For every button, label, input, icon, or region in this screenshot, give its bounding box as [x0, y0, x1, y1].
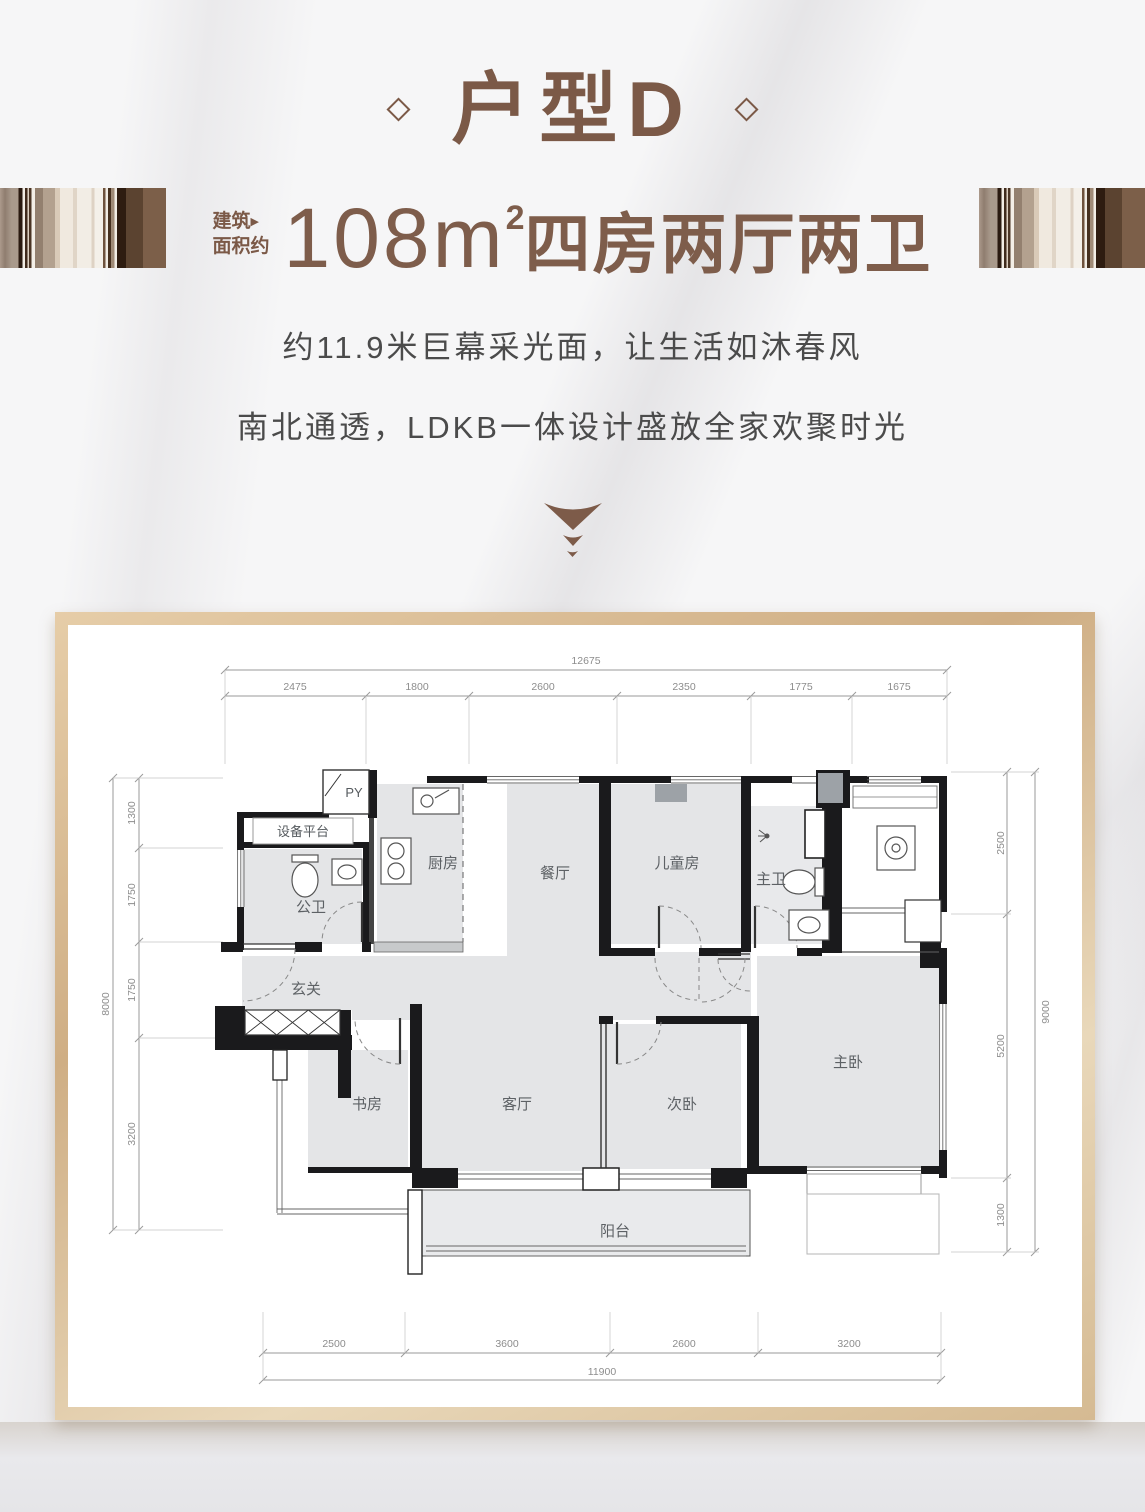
title-row: 户型D: [0, 70, 1145, 148]
kitchen-sink-icon: [413, 788, 459, 814]
area-superscript: 2: [506, 199, 525, 237]
toilet-icon: [292, 863, 318, 897]
dim-left-seg: 3200: [126, 1122, 138, 1146]
toilet-tank: [292, 855, 318, 862]
room-label-master-bath: 主卫: [756, 871, 786, 888]
dim-bottom-seg: 3600: [495, 1338, 519, 1350]
dim-left-total: 8000: [100, 992, 112, 1016]
dim-bottom-seg: 2600: [672, 1338, 696, 1350]
floorplan-canvas: 12675 2475 1800 2600 2350 1775 1675 8000…: [68, 625, 1082, 1407]
area-headline: 建筑▶ 面积约 108m2四房两厅两卫: [0, 193, 1145, 283]
dim-top-seg: 2600: [531, 681, 555, 693]
shower-column: [805, 810, 825, 858]
dim-right-seg: 2500: [995, 831, 1007, 855]
triangle-right-icon: ▶: [250, 216, 258, 228]
dim-top-seg: 2475: [283, 681, 307, 693]
dim-left-seg: 1750: [126, 978, 138, 1002]
room-label-master-bed: 主卧: [833, 1054, 863, 1071]
area-value: 108m2四房两厅两卫: [283, 196, 932, 280]
room-label-equipment: 设备平台: [277, 824, 329, 839]
dim-top-seg: 1800: [405, 681, 429, 693]
dimension-left: [109, 774, 223, 1234]
room-label-guest-bath: 公卫: [296, 899, 326, 916]
room-label-py: PY: [345, 785, 363, 800]
dimension-top: [221, 666, 951, 764]
floorplan-svg: 12675 2475 1800 2600 2350 1775 1675 8000…: [68, 625, 1082, 1407]
dim-right-seg: 1300: [995, 1203, 1007, 1227]
dimension-left-labels: 8000 1300 1750 1750 3200: [100, 801, 138, 1146]
dim-top-seg: 1675: [887, 681, 911, 693]
dim-top-seg: 1775: [789, 681, 813, 693]
down-arrow-medium: [563, 535, 583, 546]
toilet-tank: [815, 868, 824, 896]
dim-bottom-seg: 3200: [837, 1338, 861, 1350]
dim-right-total: 9000: [1040, 1000, 1052, 1024]
diamond-icon: [734, 97, 758, 121]
taglines: 约11.9米巨幕采光面，让生活如沐春风 南北通透，LDKB一体设计盛放全家欢聚时…: [0, 322, 1145, 482]
room-label-kitchen: 厨房: [428, 855, 458, 872]
dimension-top-labels: 12675 2475 1800 2600 2350 1775 1675: [283, 655, 911, 693]
room-label-living: 客厅: [502, 1096, 532, 1113]
room-label-kids: 儿童房: [654, 854, 699, 872]
room-label-dining: 餐厅: [540, 865, 570, 882]
dimension-bottom-labels: 11900 2500 3600 2600 3200: [322, 1338, 861, 1378]
down-arrow-small: [567, 551, 578, 557]
down-arrow-icon: [0, 503, 1145, 557]
bottom-marble-band: [0, 1422, 1145, 1512]
area-label: 建筑▶ 面积约: [212, 210, 269, 259]
dimension-right-labels: 9000 2500 5200 1300: [995, 831, 1052, 1227]
area-label-line1: 建筑: [212, 211, 250, 232]
room-label-second-bed: 次卧: [667, 1096, 697, 1113]
room-label-balcony: 阳台: [600, 1223, 630, 1240]
floorplan-gold-frame: 12675 2475 1800 2600 2350 1775 1675 8000…: [55, 612, 1095, 1420]
dim-left-seg: 1300: [126, 801, 138, 825]
page-title: 户型D: [451, 70, 693, 148]
dim-right-seg: 5200: [995, 1034, 1007, 1058]
dim-bottom-total: 11900: [588, 1366, 617, 1378]
dim-top-seg: 2350: [672, 681, 696, 693]
dim-bottom-seg: 2500: [322, 1338, 346, 1350]
room-label-study: 书房: [352, 1096, 382, 1113]
area-room-count: 四房两厅两卫: [525, 207, 933, 281]
diamond-icon: [387, 97, 411, 121]
area-number: 108m: [283, 191, 505, 285]
dim-left-seg: 1750: [126, 883, 138, 907]
tagline-1: 约11.9米巨幕采光面，让生活如沐春风: [0, 322, 1145, 367]
area-label-line2: 面积约: [212, 236, 269, 257]
dim-top-total: 12675: [571, 655, 600, 667]
room-label-foyer: 玄关: [291, 981, 321, 998]
down-arrow-large: [544, 503, 602, 530]
tagline-2: 南北通透，LDKB一体设计盛放全家欢聚时光: [0, 402, 1145, 447]
toilet-icon: [783, 870, 815, 894]
